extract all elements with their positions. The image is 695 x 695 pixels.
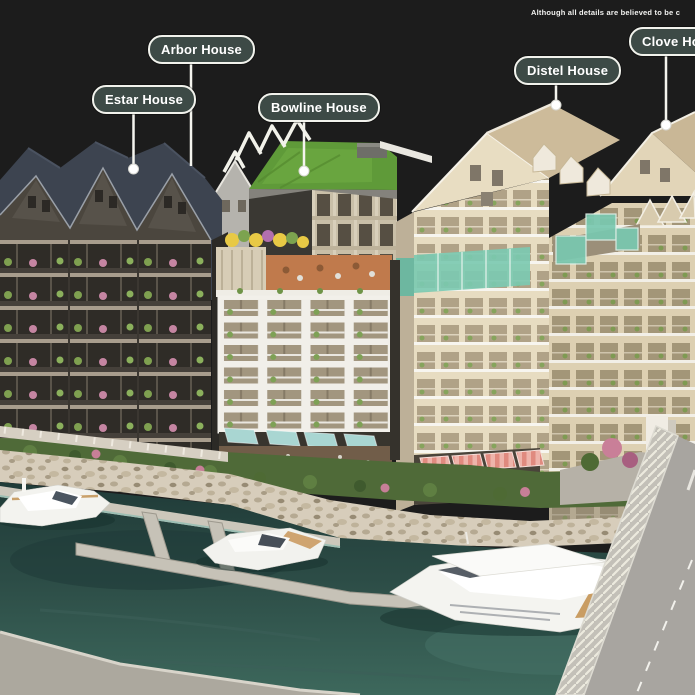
label-arbor-house[interactable]: Arbor House xyxy=(148,35,255,64)
label-distel-house[interactable]: Distel House xyxy=(514,56,621,85)
distel-house-label-text: Distel House xyxy=(527,63,608,78)
development-render-image: Estar House Arbor House Bowline House Di… xyxy=(0,0,695,695)
label-bowline-house[interactable]: Bowline House xyxy=(258,93,380,122)
bowline-house-label-text: Bowline House xyxy=(271,100,367,115)
disclaimer-text: Although all details are believed to be … xyxy=(531,8,695,17)
clove-anchor-dot xyxy=(661,120,671,130)
bowline-anchor-dot xyxy=(299,166,309,176)
distel-anchor-dot xyxy=(551,100,561,110)
estar-house-label-text: Estar House xyxy=(105,92,183,107)
white-mid-building xyxy=(216,230,400,468)
label-estar-house[interactable]: Estar House xyxy=(92,85,196,114)
arbor-house-label-text: Arbor House xyxy=(161,42,242,57)
clove-house-label-text: Clove House xyxy=(642,34,695,49)
estar-arbor-dark-buildings xyxy=(0,142,228,470)
estar-anchor-dot xyxy=(129,164,139,174)
label-clove-house[interactable]: Clove House xyxy=(629,27,695,56)
